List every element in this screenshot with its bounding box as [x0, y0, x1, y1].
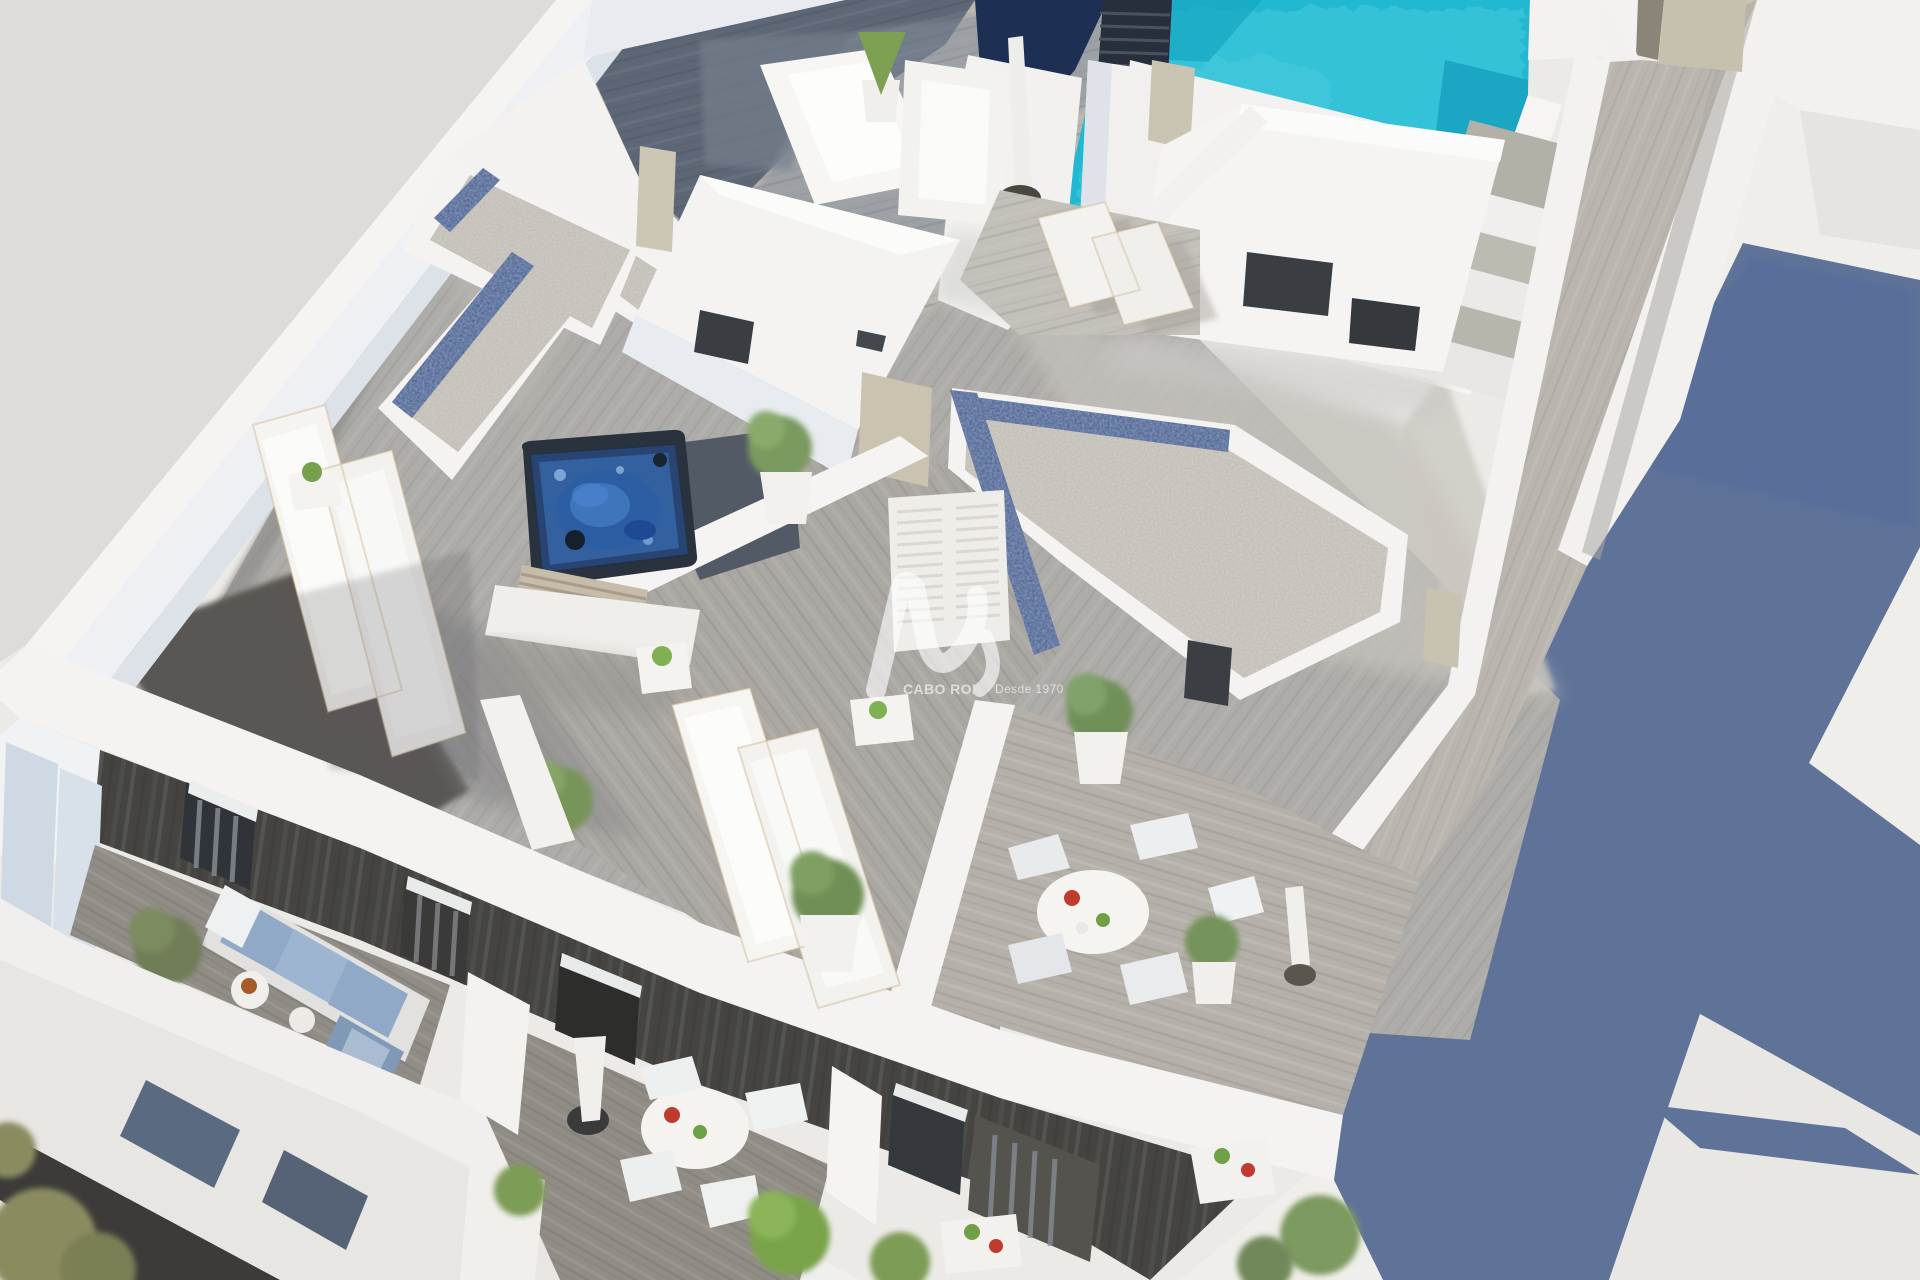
svg-text:Desde 1970: Desde 1970	[995, 682, 1064, 696]
svg-text:CABO ROIG: CABO ROIG	[903, 681, 988, 697]
